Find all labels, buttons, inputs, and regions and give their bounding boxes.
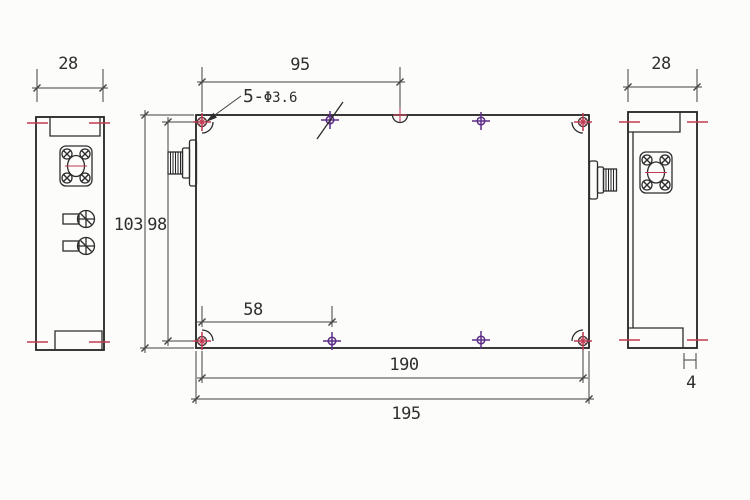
dim-label-flange-lip: 4 bbox=[681, 373, 701, 393]
dim-label-top-hole-span: 95 bbox=[282, 55, 318, 75]
hole-callout-leader bbox=[206, 96, 241, 122]
dim-label-right-width: 28 bbox=[643, 54, 679, 74]
rf-connector-flange-icon bbox=[640, 152, 672, 193]
hole-callout-prefix: 5- bbox=[243, 86, 264, 107]
dim-bottom-hole-offset bbox=[197, 306, 337, 327]
hole-callout-size: Φ3.6 bbox=[264, 90, 298, 106]
screw-hole-purple-icon bbox=[472, 331, 490, 349]
coax-connector-icon bbox=[590, 161, 617, 199]
rf-connector-flange-icon bbox=[60, 146, 92, 186]
half-hole-notch-icon bbox=[393, 108, 408, 123]
feedthrough-terminal-icon bbox=[63, 237, 95, 255]
feedthrough-terminal-icon bbox=[63, 210, 95, 228]
right-side-view bbox=[619, 69, 708, 369]
hole-callout-label: 5-Φ3.6 bbox=[243, 86, 297, 107]
dim-label-bottom-hole-offset: 58 bbox=[239, 300, 267, 320]
left-side-view bbox=[27, 69, 110, 350]
dim-label-left-width: 28 bbox=[50, 54, 86, 74]
dim-label-width-overall: 195 bbox=[386, 404, 426, 424]
coax-connector-icon bbox=[168, 140, 197, 186]
front-view bbox=[140, 67, 617, 404]
dim-label-height-overall: 103 bbox=[113, 215, 143, 235]
dim-flange-lip bbox=[684, 353, 696, 369]
technical-drawing: 28 95 5-Φ3.6 103 98 58 190 195 28 4 bbox=[0, 0, 750, 500]
dim-label-height-between-holes: 98 bbox=[147, 215, 167, 235]
dim-label-hole-span-width: 190 bbox=[384, 355, 424, 375]
drawing-linework bbox=[0, 0, 750, 500]
screw-hole-purple-icon bbox=[317, 102, 343, 139]
